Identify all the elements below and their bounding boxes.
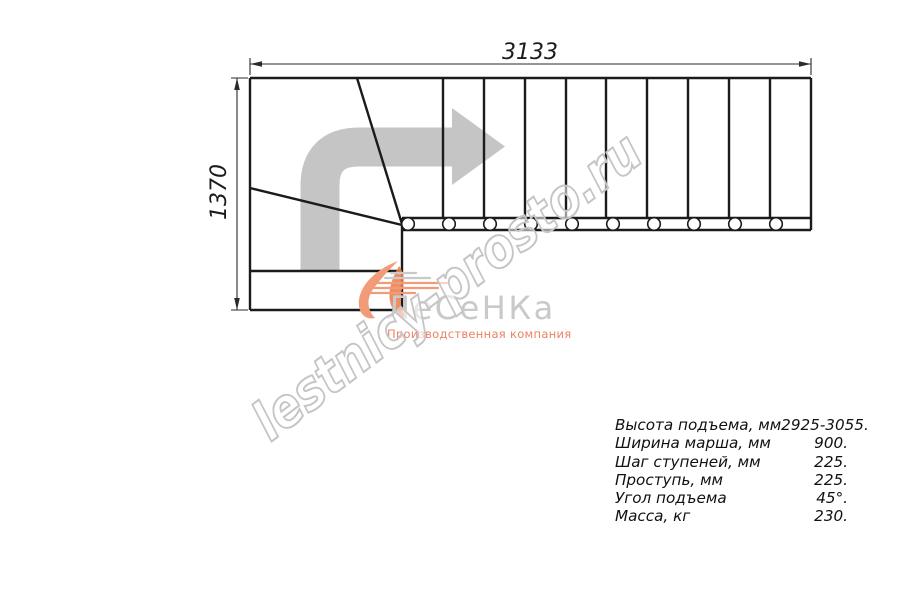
spec-row-step-pitch: Шаг ступеней, мм 225. [615,453,848,471]
arrowhead-left [250,61,262,67]
spec-table: Высота подъема, мм 2925-3055. Ширина мар… [615,416,848,526]
spec-label: Масса, кг [615,507,690,525]
baluster-circles [402,218,783,231]
spec-label: Угол подъема [615,489,727,507]
dimension-label-width: 3133 [502,40,558,65]
spec-value: 225. [814,471,848,489]
spec-value: 45°. [816,489,848,507]
spec-label: Ширина марша, мм [615,434,771,452]
arrowhead-bottom [234,298,240,310]
spec-value: 900. [814,434,848,452]
left-dimension [231,78,248,310]
dimension-label-height: 1370 [207,164,232,220]
spec-value: 2925-3055. [781,416,869,434]
spec-label: Высота подъема, мм [615,416,781,434]
arrowhead-top [234,78,240,90]
arrowhead-right [799,61,811,67]
spec-row-march-width: Ширина марша, мм 900. [615,434,848,452]
spec-label: Проступь, мм [615,471,723,489]
staircase-drawing-page: 3133 1370 ЛеСеНКа Производственная компа… [0,0,900,600]
spec-row-tread: Проступь, мм 225. [615,471,848,489]
spec-row-mass: Масса, кг 230. [615,507,848,525]
spec-row-angle: Угол подъема 45°. [615,489,848,507]
spec-value: 225. [814,453,848,471]
direction-arrow-head [452,108,505,185]
spec-label: Шаг ступеней, мм [615,453,761,471]
spec-value: 230. [814,507,848,525]
spec-row-height: Высота подъема, мм 2925-3055. [615,416,848,434]
